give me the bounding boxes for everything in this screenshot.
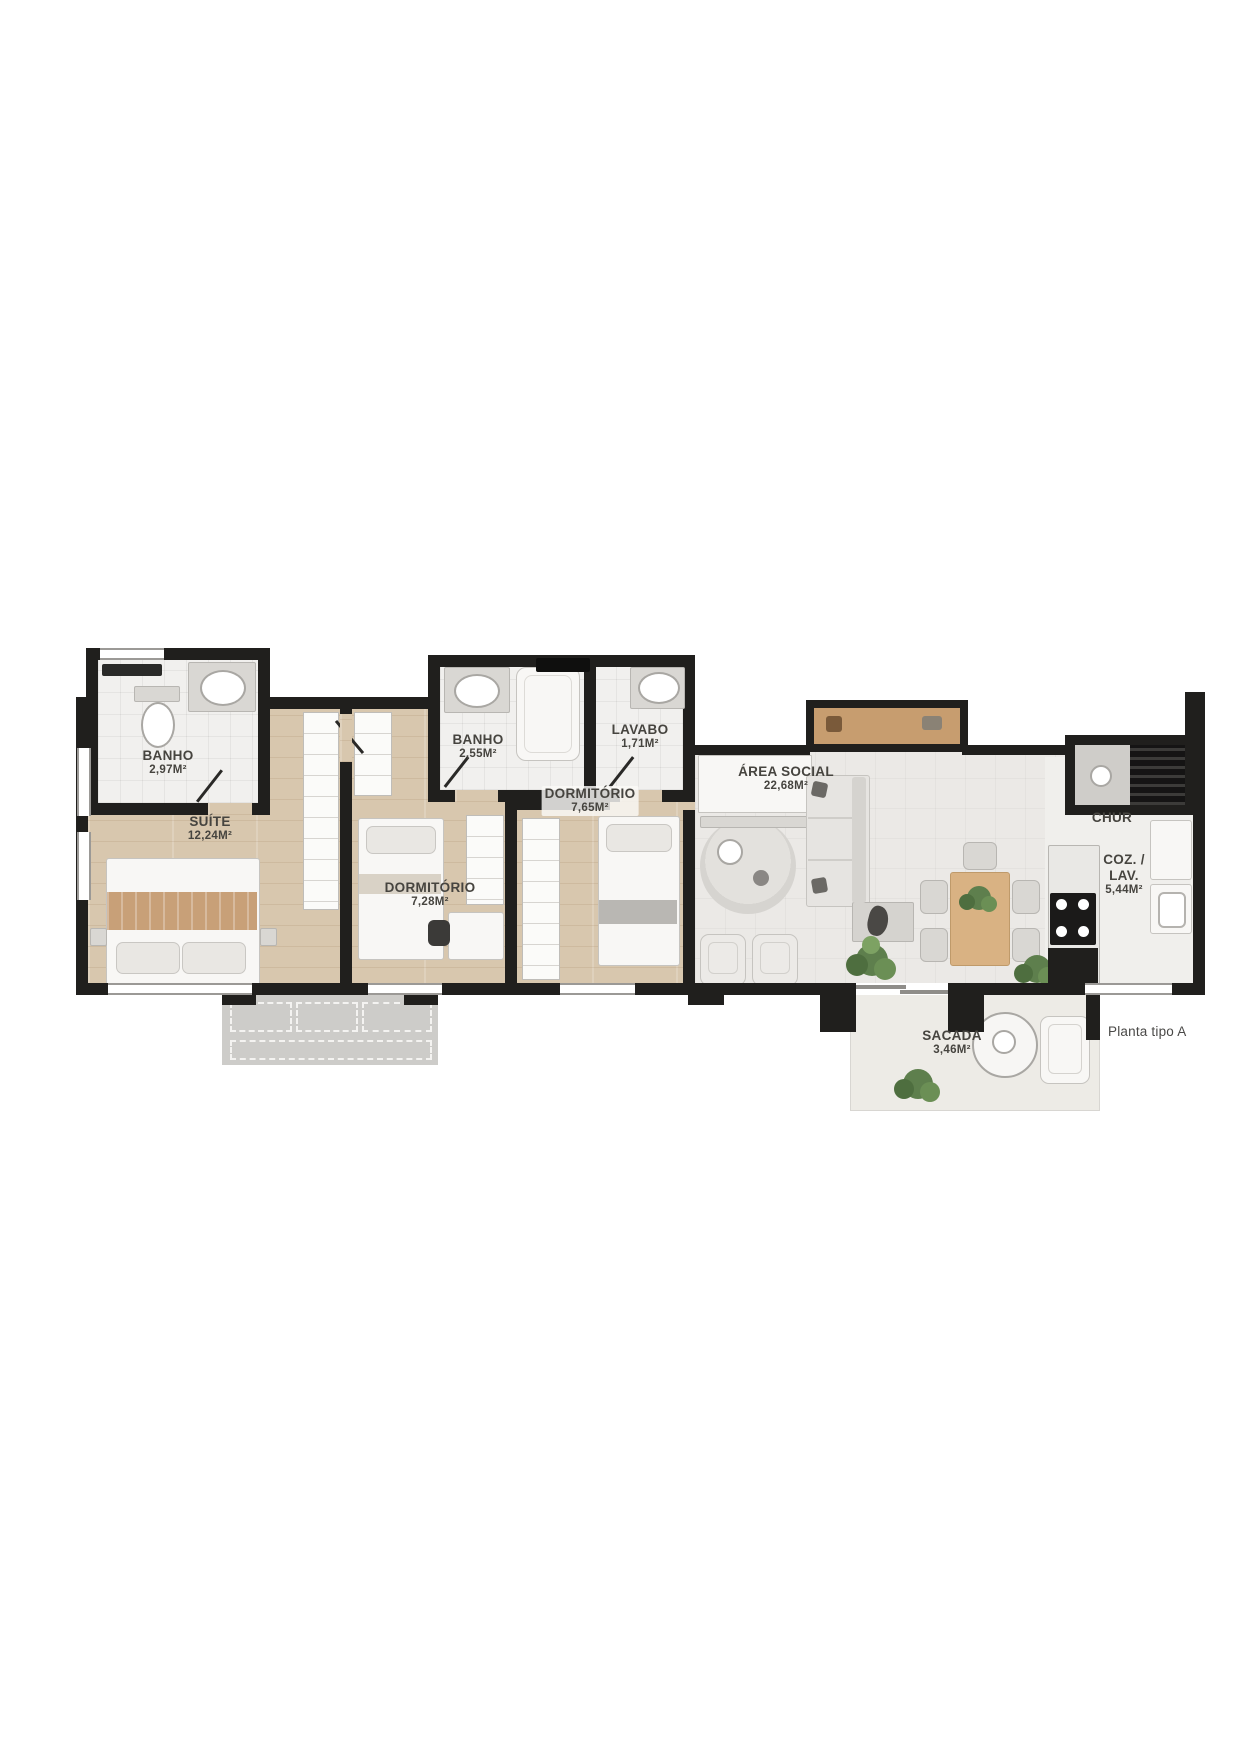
- room-label-dormitorio-2: DORMITÓRIO 7,65M²: [542, 786, 639, 816]
- niche-decor: [922, 716, 942, 730]
- bed-pillow: [182, 942, 246, 974]
- round-rug: [700, 818, 796, 914]
- room-label-churrasqueira: CHUR: [1092, 810, 1132, 826]
- balcony-pier-right: [948, 983, 984, 1032]
- dorm2-social-wall: [683, 810, 695, 995]
- grill-icon: [1130, 745, 1185, 805]
- towel-rack: [102, 664, 162, 676]
- bathroom-divider-wall: [584, 661, 596, 796]
- nightstand: [260, 928, 277, 946]
- sofa-seam: [808, 817, 852, 819]
- sink-icon: [638, 672, 680, 704]
- suite-window-left-1: [77, 748, 91, 816]
- dining-chair: [920, 928, 948, 962]
- room-label-banho-suite: BANHO 2,97M²: [143, 748, 194, 778]
- suite-bathroom-window: [100, 648, 164, 660]
- sink-icon: [454, 674, 500, 708]
- sofa-seam: [808, 859, 852, 861]
- niche-decor: [826, 716, 842, 732]
- burner: [1078, 899, 1089, 910]
- plant: [894, 1062, 942, 1110]
- tv-console: [700, 816, 810, 828]
- suite-door-gap: [340, 714, 352, 762]
- toilet-tank: [134, 686, 180, 702]
- burner: [1056, 899, 1067, 910]
- fridge: [1150, 820, 1192, 880]
- bed-blanket: [107, 892, 257, 930]
- desk-chair: [428, 920, 450, 946]
- nightstand: [90, 928, 107, 946]
- social-top-wall-1: [692, 745, 810, 755]
- suite-window: [108, 983, 252, 995]
- toilet-icon: [141, 702, 175, 748]
- terrace-planter: [362, 1002, 432, 1032]
- dining-chair: [920, 880, 948, 914]
- plan-footnote: Planta tipo A: [1108, 1024, 1186, 1039]
- burner: [1078, 926, 1089, 937]
- sofa-pillow: [811, 877, 828, 894]
- plant: [846, 936, 898, 988]
- terrace-planter: [230, 1040, 432, 1060]
- dorm2-wardrobe: [522, 818, 560, 980]
- room-label-area-social: ÁREA SOCIAL 22,68M²: [738, 764, 834, 794]
- shelf-ledge: [536, 658, 590, 672]
- lounge-cushion: [1048, 1024, 1082, 1074]
- balcony-wall-stub: [1086, 995, 1100, 1040]
- sofa-backrest: [852, 777, 866, 903]
- armchair-seat: [760, 942, 790, 974]
- table-decor: [992, 1030, 1016, 1054]
- chimney-block: [1185, 692, 1205, 737]
- bed-pillow: [606, 824, 672, 852]
- room-label-sacada: SACADA 3,46M²: [922, 1028, 982, 1058]
- room-label-banho-social: BANHO 2,55M²: [453, 732, 504, 762]
- burner: [1056, 926, 1067, 937]
- pier: [688, 983, 724, 1005]
- social-top-wall-2: [962, 745, 1068, 755]
- terrace-planter: [230, 1002, 292, 1032]
- coffee-table: [717, 839, 743, 865]
- room-label-suite: SUÍTE 12,24M²: [188, 814, 232, 844]
- bed-pillow: [366, 826, 436, 854]
- dorm1-dorm2-wall: [505, 800, 517, 995]
- kitchen-window: [1085, 983, 1172, 995]
- room-label-lavabo: LAVABO 1,71M²: [612, 722, 669, 752]
- sink-icon: [200, 670, 246, 706]
- room-label-dormitorio-1: DORMITÓRIO 7,28M²: [385, 880, 476, 910]
- sliding-door-panel: [856, 985, 906, 989]
- bed-throw: [599, 900, 677, 924]
- terrace-planter: [296, 1002, 358, 1032]
- bed-pillow: [116, 942, 180, 974]
- dining-chair: [1012, 880, 1040, 914]
- right-wall: [1193, 735, 1205, 995]
- bathroom-door-gap: [455, 790, 498, 802]
- kitchen-sink-icon: [1158, 892, 1186, 928]
- floor-plan: BANHO 2,97M² SUÍTE 12,24M² BANHO 2,55M² …: [0, 0, 1240, 1755]
- room-label-cozinha: COZ. / LAV. 5,44M²: [1103, 852, 1145, 898]
- chur-sink-icon: [1090, 765, 1112, 787]
- suite-wardrobe: [303, 712, 339, 910]
- armchair-seat: [708, 942, 738, 974]
- dorm2-window: [560, 983, 635, 995]
- desk: [448, 912, 504, 960]
- plant-on-table: [959, 880, 999, 920]
- dorm1-window: [368, 983, 442, 995]
- dining-chair: [963, 842, 997, 870]
- balcony-pier-left: [820, 983, 856, 1032]
- shower-inner: [524, 675, 572, 753]
- dorm1-closet-top: [354, 712, 392, 796]
- pouf: [753, 870, 769, 886]
- suite-window-left-2: [77, 832, 91, 900]
- kitchen-wall-stub: [1048, 948, 1098, 985]
- sliding-door-panel: [900, 990, 948, 994]
